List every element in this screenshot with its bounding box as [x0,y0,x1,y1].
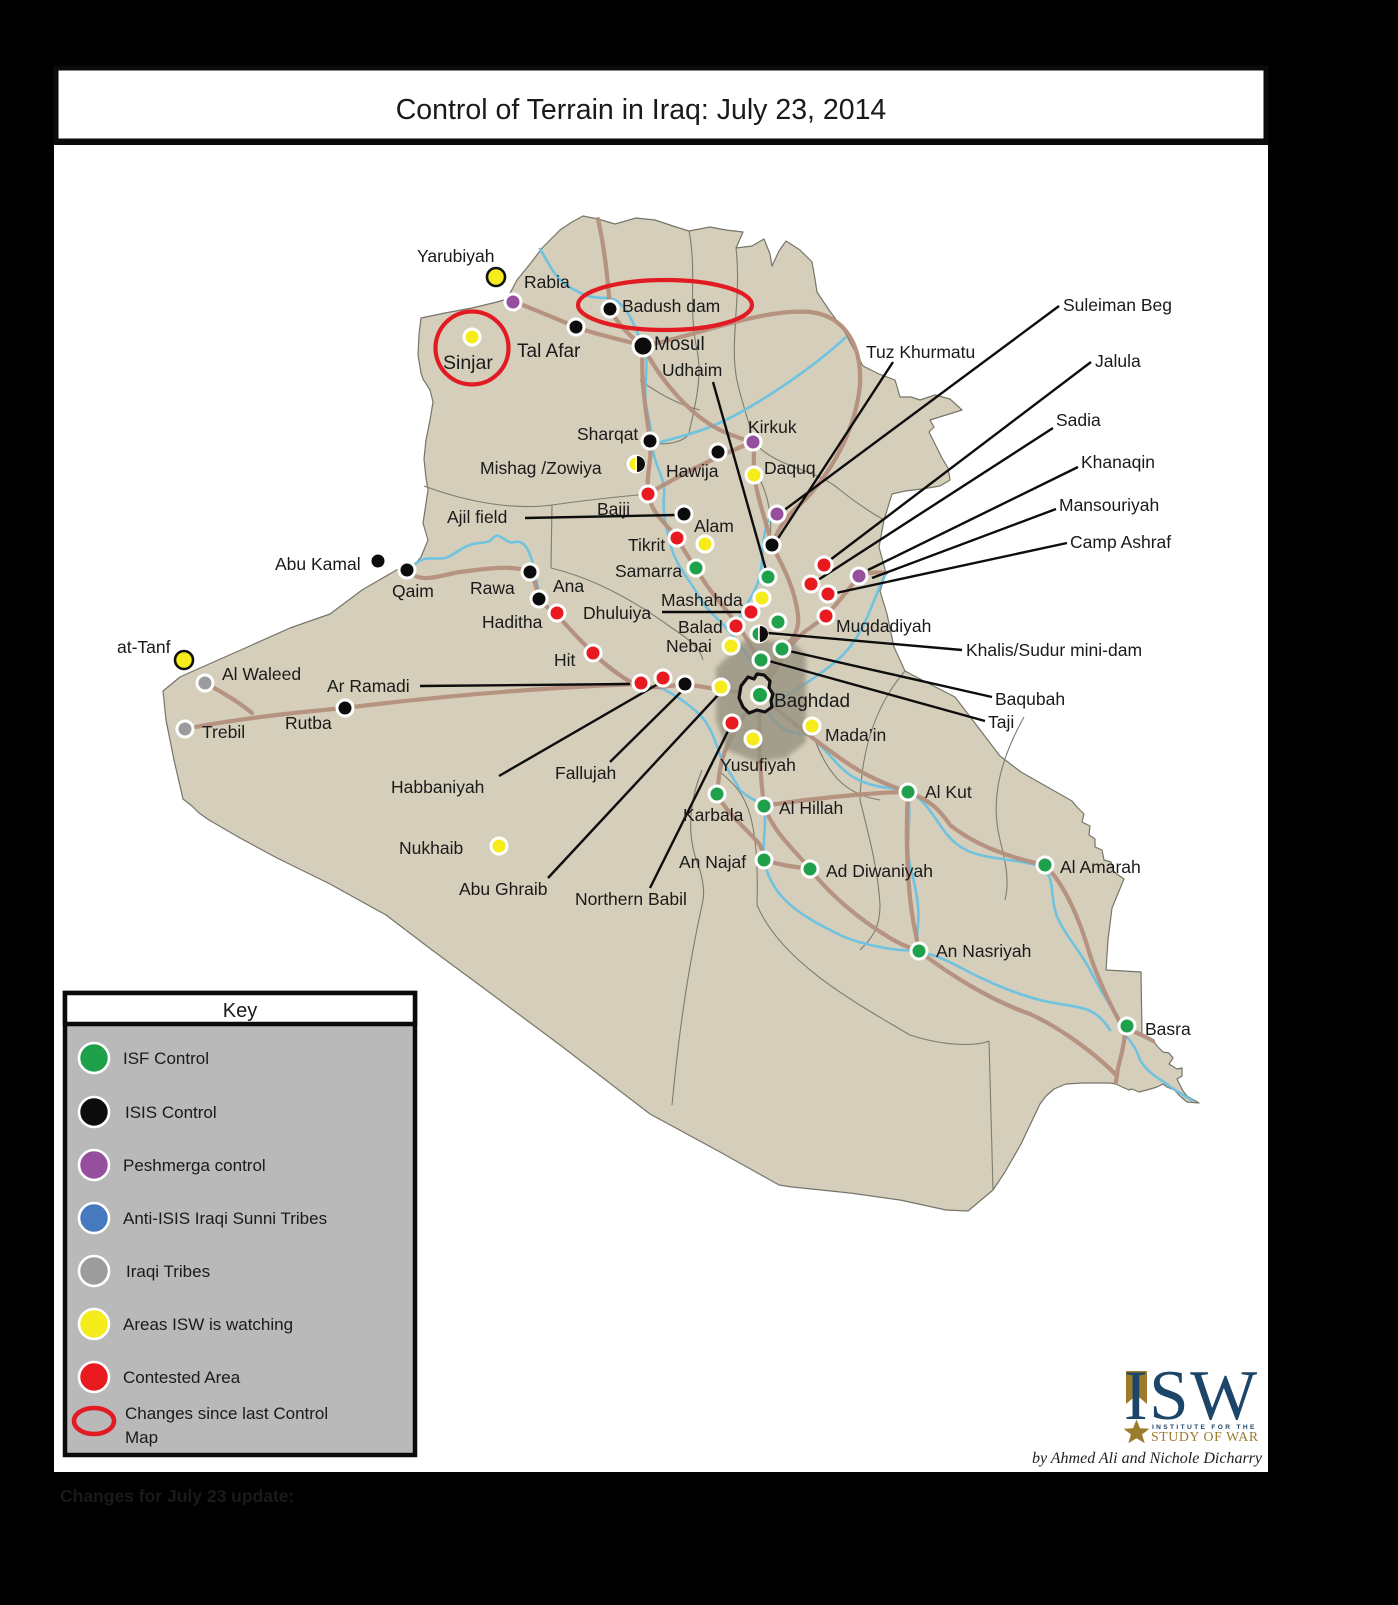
svg-text:Mashahda: Mashahda [661,590,743,610]
svg-text:ISF Control: ISF Control [123,1049,209,1068]
svg-text:Alam: Alam [694,516,734,536]
svg-text:Mishag /Zowiya: Mishag /Zowiya [480,458,602,478]
svg-text:Sinjar: Sinjar [443,352,493,374]
svg-text:Camp Ashraf: Camp Ashraf [1070,532,1171,552]
svg-text:Dhuluiya: Dhuluiya [583,603,651,623]
svg-text:Changes for July 23 update:: Changes for July 23 update: [60,1486,294,1506]
svg-text:Key: Key [223,1000,257,1022]
svg-text:Abu Ghraib: Abu Ghraib [459,879,548,899]
svg-text:Al Hillah: Al Hillah [779,798,843,818]
svg-text:Map: Map [125,1428,158,1447]
svg-text:Al Kut: Al Kut [925,782,972,802]
svg-text:Changes since last Control: Changes since last Control [125,1404,328,1423]
svg-text:Haditha: Haditha [482,612,543,632]
svg-text:Abu Kamal: Abu Kamal [275,554,361,574]
svg-text:An Nasriyah: An Nasriyah [936,941,1031,961]
svg-text:Qaim: Qaim [392,581,434,601]
svg-text:Nukhaib: Nukhaib [399,838,463,858]
svg-text:Mansouriyah: Mansouriyah [1059,495,1159,515]
svg-text:Yarubiyah: Yarubiyah [417,246,495,266]
svg-text:Ana: Ana [553,576,584,596]
svg-text:Tikrit: Tikrit [628,535,665,555]
svg-text:Al Waleed: Al Waleed [222,664,301,684]
svg-text:Karbala: Karbala [683,805,744,825]
svg-text:Basra: Basra [1145,1019,1191,1039]
svg-text:Kirkuk: Kirkuk [748,417,797,437]
svg-text:Khanaqin: Khanaqin [1081,452,1155,472]
svg-text:Habbaniyah: Habbaniyah [391,777,484,797]
svg-text:Daquq: Daquq [764,458,816,478]
svg-text:Rawa: Rawa [470,578,515,598]
svg-text:Anti-ISIS Iraqi Sunni Tribes: Anti-ISIS Iraqi Sunni Tribes [123,1209,327,1228]
svg-text:Ajil field: Ajil field [447,507,507,527]
svg-text:Udhaim: Udhaim [662,360,722,380]
svg-text:Balad: Balad [678,617,723,637]
svg-text:Sharqat: Sharqat [577,424,638,444]
svg-text:Areas ISW is watching: Areas ISW is watching [123,1315,293,1334]
svg-text:Northern Babil: Northern Babil [575,889,687,909]
svg-text:Trebil: Trebil [202,722,245,742]
svg-text:Iraqi Tribes: Iraqi Tribes [126,1262,210,1281]
svg-text:Hit: Hit [554,650,576,670]
svg-text:Taji: Taji [988,712,1014,732]
svg-text:at-Tanf: at-Tanf [117,637,171,657]
svg-text:Nebai: Nebai [666,636,712,656]
svg-text:Badush dam: Badush dam [622,296,720,316]
svg-text:Al Amarah: Al Amarah [1060,857,1141,877]
svg-text:Samarra: Samarra [615,561,682,581]
svg-text:STUDY OF WAR: STUDY OF WAR [1151,1429,1259,1444]
svg-text:Yusufiyah: Yusufiyah [720,755,796,775]
svg-text:An Najaf: An Najaf [679,852,746,872]
svg-text:Tuz Khurmatu: Tuz Khurmatu [866,342,975,362]
svg-text:Rutba: Rutba [285,713,332,733]
svg-text:ISIS Control: ISIS Control [125,1103,217,1122]
svg-text:Peshmerga control: Peshmerga control [123,1156,266,1175]
svg-text:Jalula: Jalula [1095,351,1141,371]
svg-text:Contested Area: Contested Area [123,1368,241,1387]
svg-text:Baqubah: Baqubah [995,689,1065,709]
svg-text:Tal Afar: Tal Afar [517,341,581,362]
svg-text:Khalis/Sudur mini-dam: Khalis/Sudur mini-dam [966,640,1142,660]
svg-text:Hawija: Hawija [666,461,719,481]
svg-text:Fallujah: Fallujah [555,763,616,783]
svg-text:Mosul: Mosul [654,334,705,355]
svg-text:Muqdadiyah: Muqdadiyah [836,616,931,636]
svg-text:Mada’in: Mada’in [825,725,886,745]
svg-text:Ad Diwaniyah: Ad Diwaniyah [826,861,933,881]
svg-text:Sadia: Sadia [1056,410,1101,430]
svg-text:Suleiman Beg: Suleiman Beg [1063,295,1172,315]
svg-text:Baiji: Baiji [597,499,630,519]
svg-text:Control of Terrain in Iraq: Ju: Control of Terrain in Iraq: July 23, 201… [396,94,887,126]
svg-text:Baghdad: Baghdad [774,691,850,712]
svg-text:Rabia: Rabia [524,272,570,292]
svg-text:by Ahmed Ali and Nichole Dich: by Ahmed Ali and Nichole Dicharry [1032,1450,1263,1467]
svg-text:Ar Ramadi: Ar Ramadi [327,676,410,696]
